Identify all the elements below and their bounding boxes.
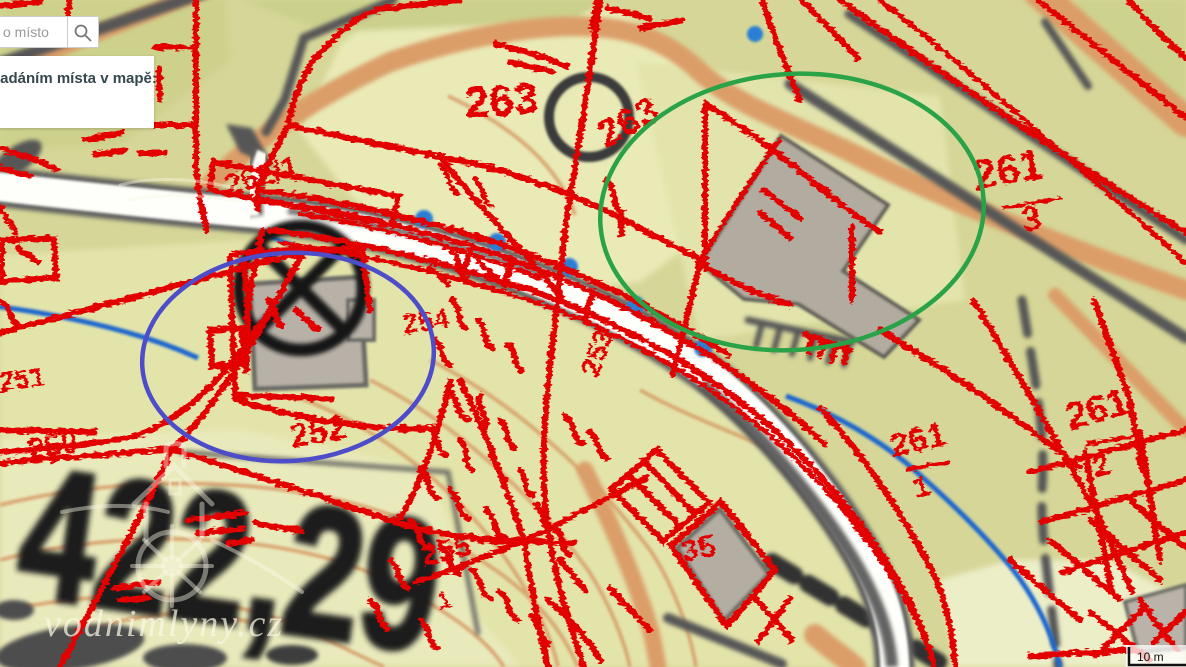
svg-text:35: 35 xyxy=(679,530,719,569)
svg-text:263: 263 xyxy=(463,74,540,128)
svg-text:vodnimlyny.cz: vodnimlyny.cz xyxy=(44,603,284,645)
svg-text:251: 251 xyxy=(0,361,47,398)
svg-text:10 m: 10 m xyxy=(1137,650,1164,664)
